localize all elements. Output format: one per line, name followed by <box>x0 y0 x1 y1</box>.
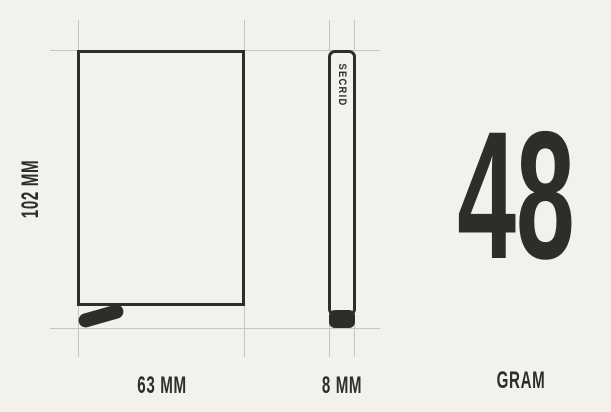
guide-line-front-left-bottom <box>78 305 79 357</box>
card-slider-lever <box>77 303 125 329</box>
weight-value: 48 <box>446 104 585 286</box>
dimension-label-height: 102 MM <box>20 158 42 221</box>
guide-line-side-left-top <box>329 20 330 51</box>
brand-label: SECRID <box>336 43 348 128</box>
guide-line-bottom-horizontal <box>50 328 380 329</box>
guide-line-front-right-bottom <box>244 305 245 357</box>
dimension-label-depth: 8 MM <box>311 375 374 397</box>
weight-unit-label: GRAM <box>490 370 553 392</box>
guide-line-front-right-top <box>244 20 245 51</box>
product-dimension-diagram: SECRID 102 MM 63 MM 8 MM 48 GRAM <box>0 0 611 412</box>
dimension-label-width: 63 MM <box>131 375 194 397</box>
wallet-front-view-outline <box>77 50 245 306</box>
guide-line-front-left-top <box>78 20 79 51</box>
slider-button-side-view <box>329 310 355 328</box>
guide-line-side-right-top <box>354 20 355 51</box>
